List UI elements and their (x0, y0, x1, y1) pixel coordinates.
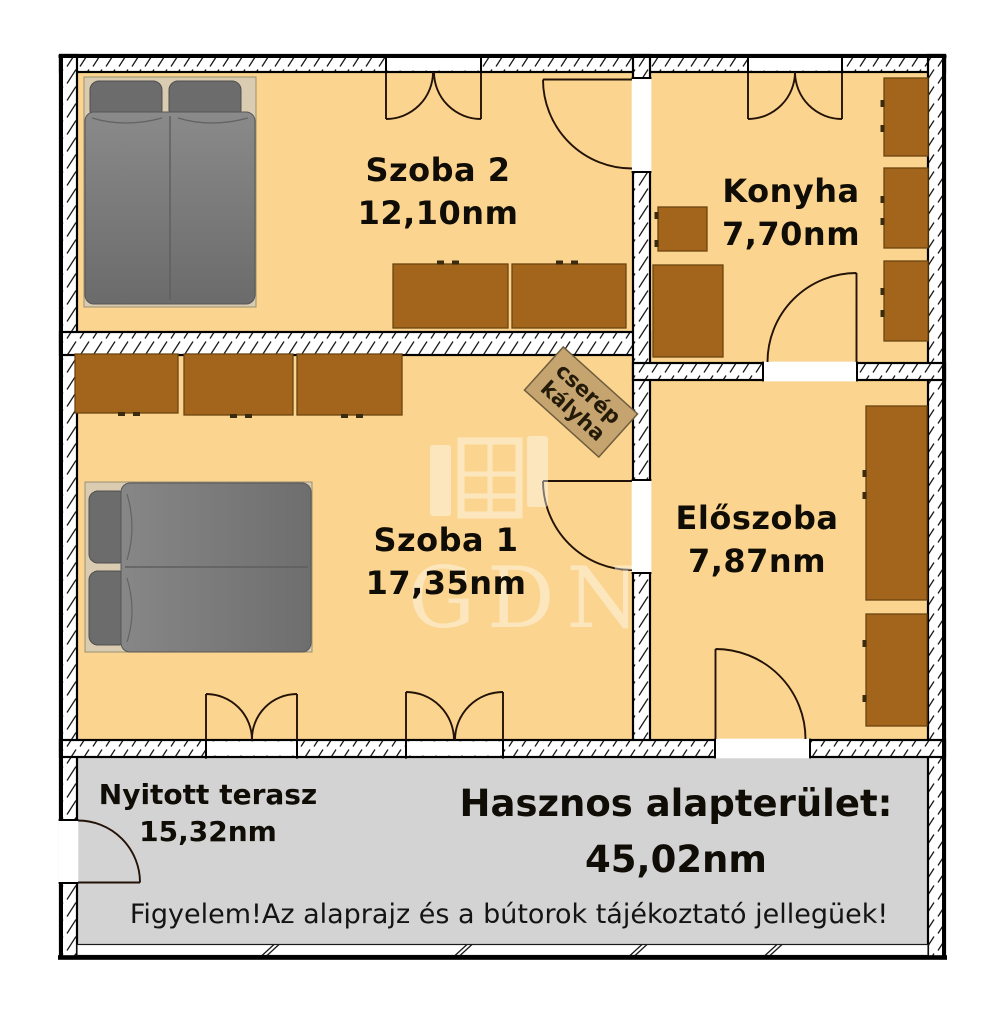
room-label-eloszoba: Előszoba 7,87nm (676, 497, 839, 583)
watermark-logo-icon (430, 436, 548, 516)
room-label-szoba1: Szoba 1 17,35nm (366, 519, 527, 605)
room-name-terasz: Nyitott terasz (99, 776, 317, 813)
room-name-konyha: Konyha (722, 170, 860, 213)
terrace-bottom-edge (58, 945, 947, 960)
bed-szoba2 (84, 77, 256, 307)
room-name-szoba2: Szoba 2 (358, 149, 519, 192)
cabinets-konyha-right (881, 78, 929, 341)
room-name-szoba1: Szoba 1 (366, 519, 527, 562)
floorplan-image: cserép kályha GDN Szoba 2 12,10nm Konyha… (0, 0, 999, 1024)
room-label-terasz: Nyitott terasz 15,32nm (99, 776, 317, 850)
bed-szoba1 (85, 482, 312, 652)
cabinets-eloszoba (863, 406, 928, 726)
usable-area-summary: Hasznos alapterület: 45,02nm (460, 776, 893, 888)
room-area-konyha: 7,70nm (722, 213, 860, 256)
room-area-szoba2: 12,10nm (358, 192, 519, 235)
disclaimer-text: Figyelem!Az alaprajz és a bútorok tájéko… (130, 899, 888, 930)
cabinets-szoba1 (75, 354, 402, 418)
room-label-szoba2: Szoba 2 12,10nm (358, 149, 519, 235)
room-area-szoba1: 17,35nm (366, 562, 527, 605)
room-label-konyha: Konyha 7,70nm (722, 170, 860, 256)
usable-area-value: 45,02nm (460, 832, 893, 888)
usable-area-label: Hasznos alapterület: (460, 776, 893, 832)
room-area-terasz: 15,32nm (99, 813, 317, 850)
room-area-eloszoba: 7,87nm (676, 540, 839, 583)
room-name-eloszoba: Előszoba (676, 497, 839, 540)
